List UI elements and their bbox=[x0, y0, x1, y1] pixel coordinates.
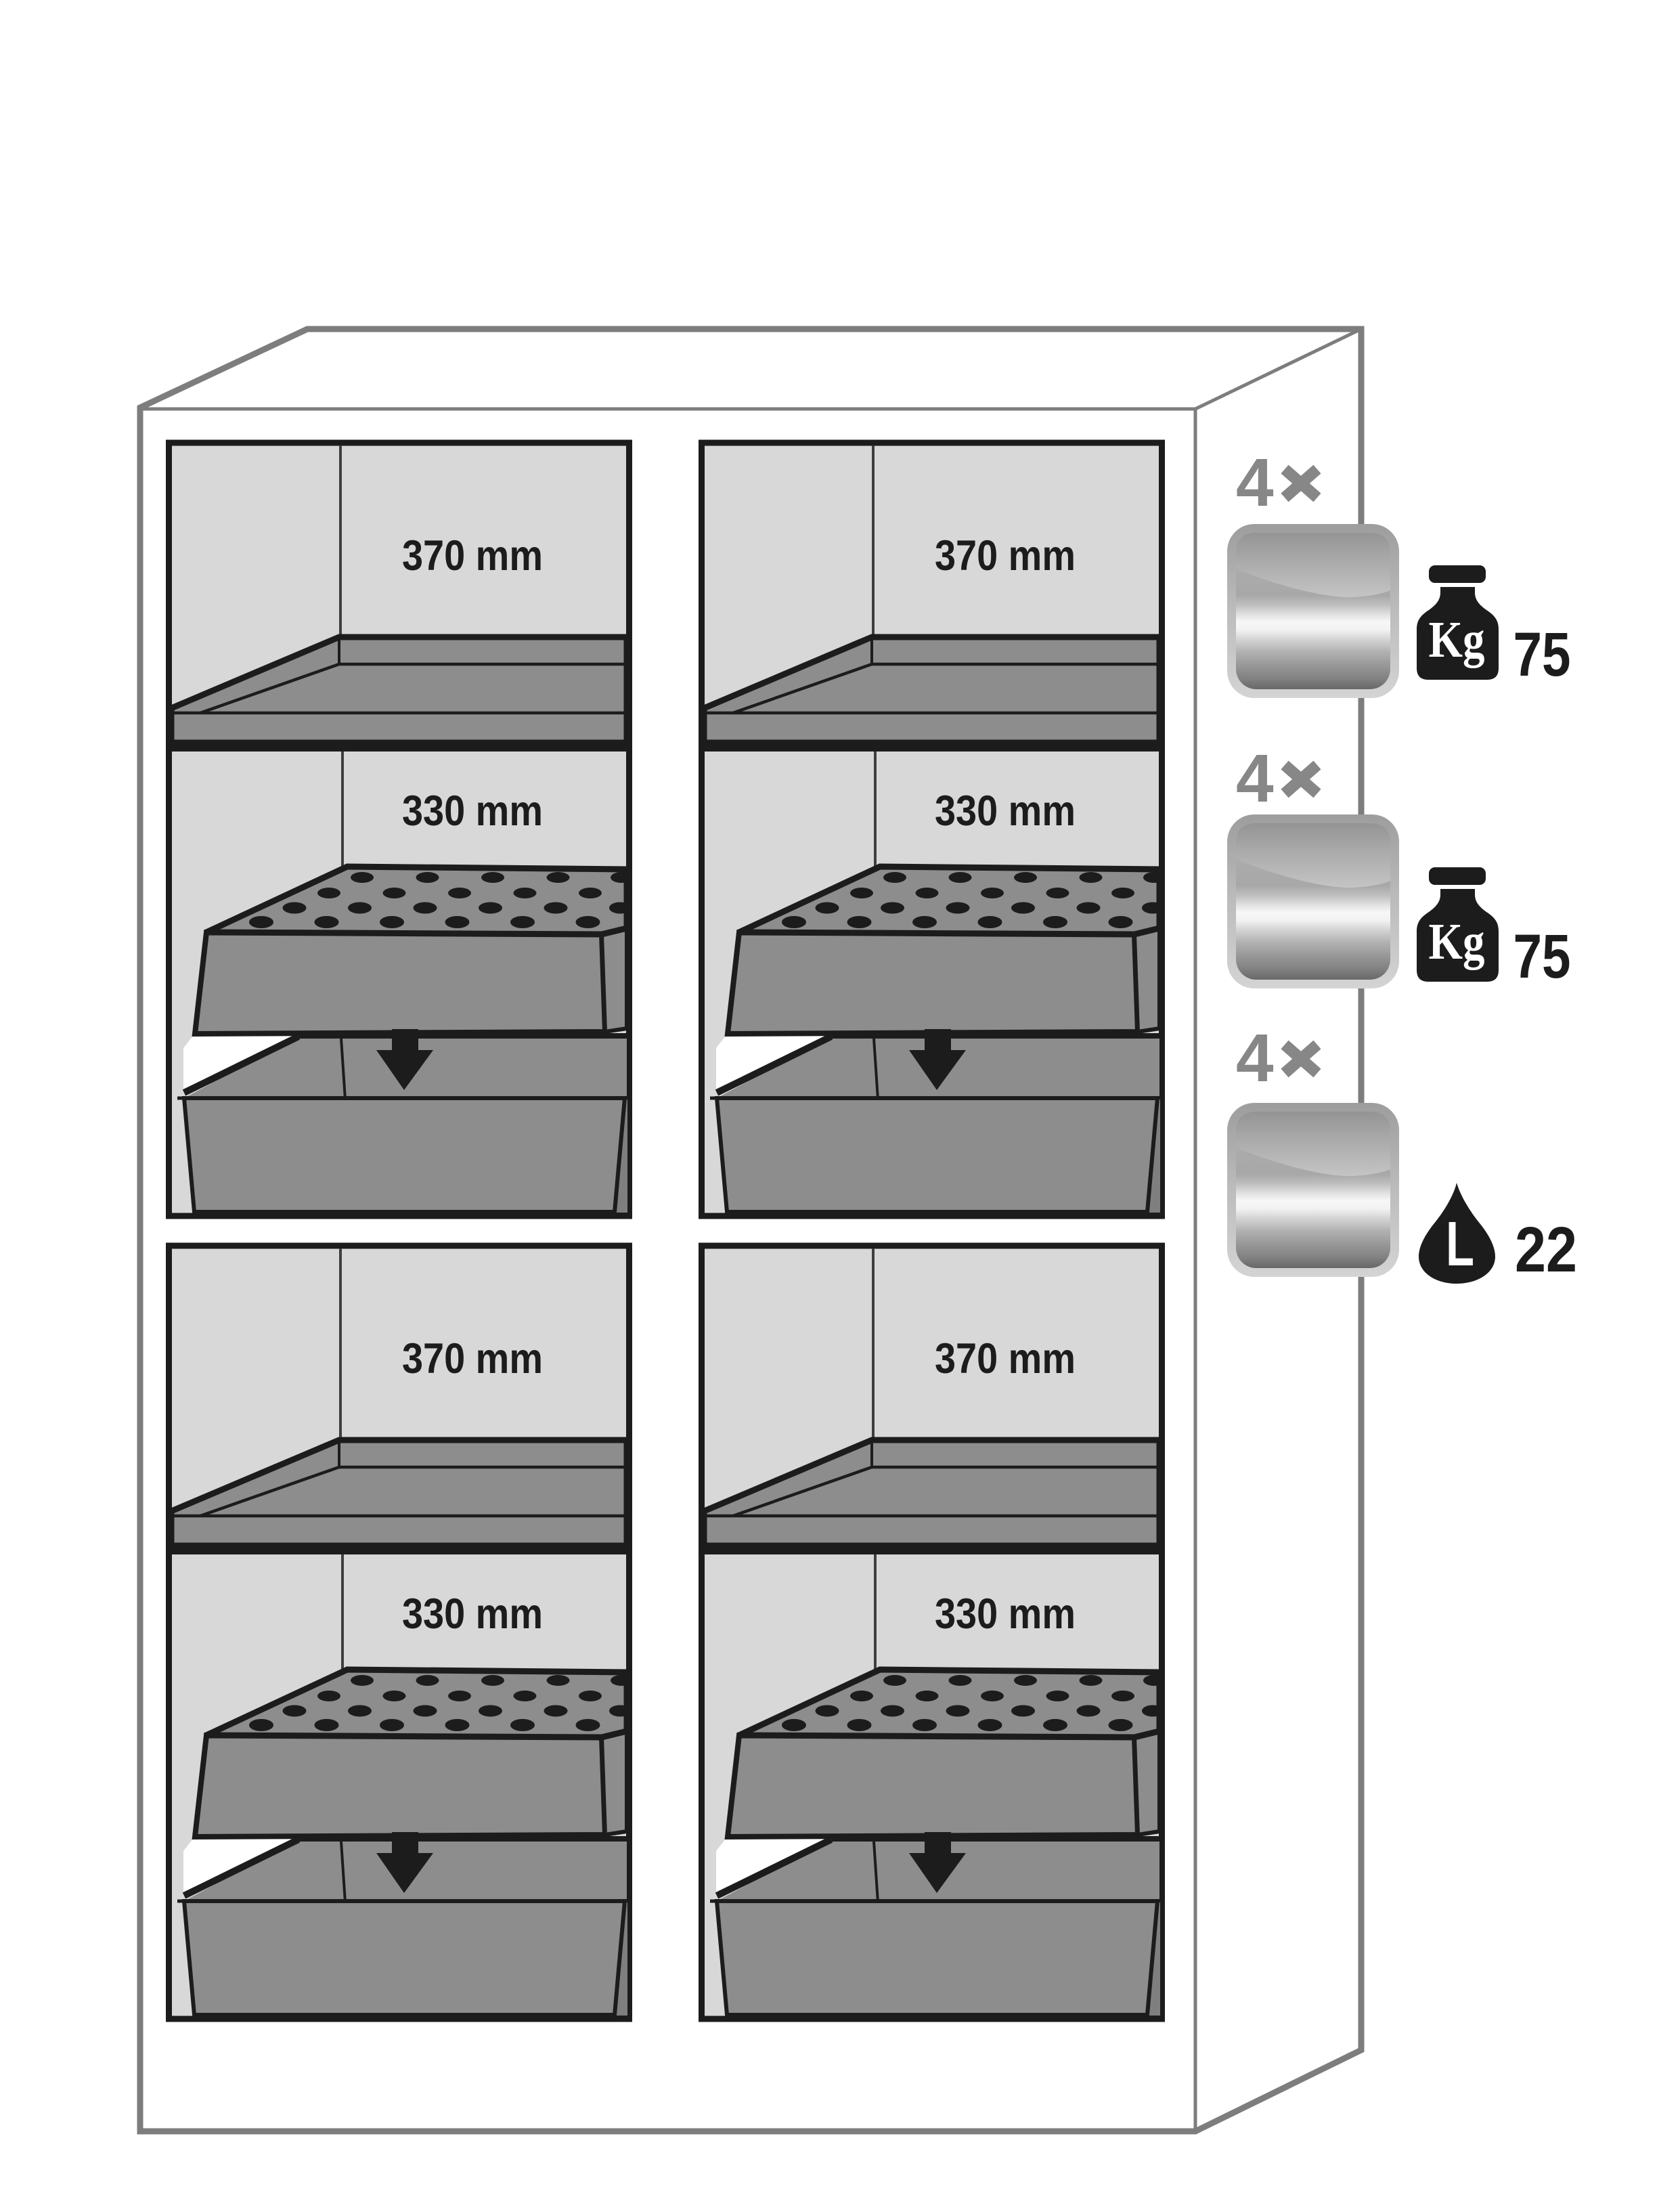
svg-text:L: L bbox=[1446, 1209, 1474, 1279]
svg-text:4: 4 bbox=[1236, 445, 1274, 521]
svg-text:22: 22 bbox=[1515, 1214, 1577, 1286]
